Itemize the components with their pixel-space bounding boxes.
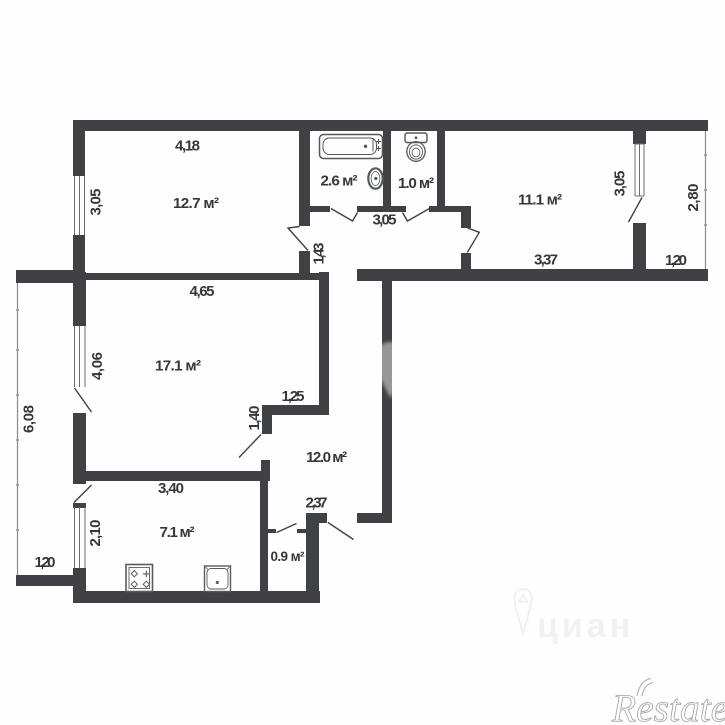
svg-text:4,06: 4,06 (89, 352, 106, 380)
svg-text:2,10: 2,10 (87, 520, 104, 547)
svg-text:0.9 м²: 0.9 м² (271, 549, 306, 564)
svg-text:3,05: 3,05 (612, 171, 629, 197)
svg-text:1.0 м²: 1.0 м² (398, 175, 434, 192)
svg-text:1,20: 1,20 (665, 252, 687, 269)
svg-text:11.1 м²: 11.1 м² (518, 192, 562, 209)
svg-text:Restate: Restate (611, 686, 725, 725)
svg-text:12.7 м²: 12.7 м² (173, 195, 219, 212)
svg-text:7.1 м²: 7.1 м² (160, 524, 195, 541)
svg-text:2,37: 2,37 (306, 495, 328, 512)
svg-text:3,40: 3,40 (158, 480, 184, 497)
svg-text:6,08: 6,08 (21, 405, 38, 433)
svg-text:1,40: 1,40 (246, 406, 263, 431)
svg-text:2.6 м²: 2.6 м² (321, 173, 358, 190)
svg-text:4,18: 4,18 (175, 138, 200, 155)
svg-text:2,80: 2,80 (685, 184, 702, 212)
svg-text:1,20: 1,20 (35, 554, 56, 571)
svg-text:17.1 м²: 17.1 м² (155, 358, 201, 375)
svg-text:циан: циан (537, 607, 634, 645)
svg-text:12.0 м²: 12.0 м² (306, 449, 347, 466)
svg-text:3,37: 3,37 (534, 252, 558, 269)
svg-text:1,25: 1,25 (282, 388, 305, 405)
svg-text:3,05: 3,05 (88, 189, 105, 216)
svg-text:3,05: 3,05 (373, 212, 397, 229)
svg-text:4,65: 4,65 (190, 283, 215, 300)
svg-text:1,43: 1,43 (311, 243, 328, 265)
